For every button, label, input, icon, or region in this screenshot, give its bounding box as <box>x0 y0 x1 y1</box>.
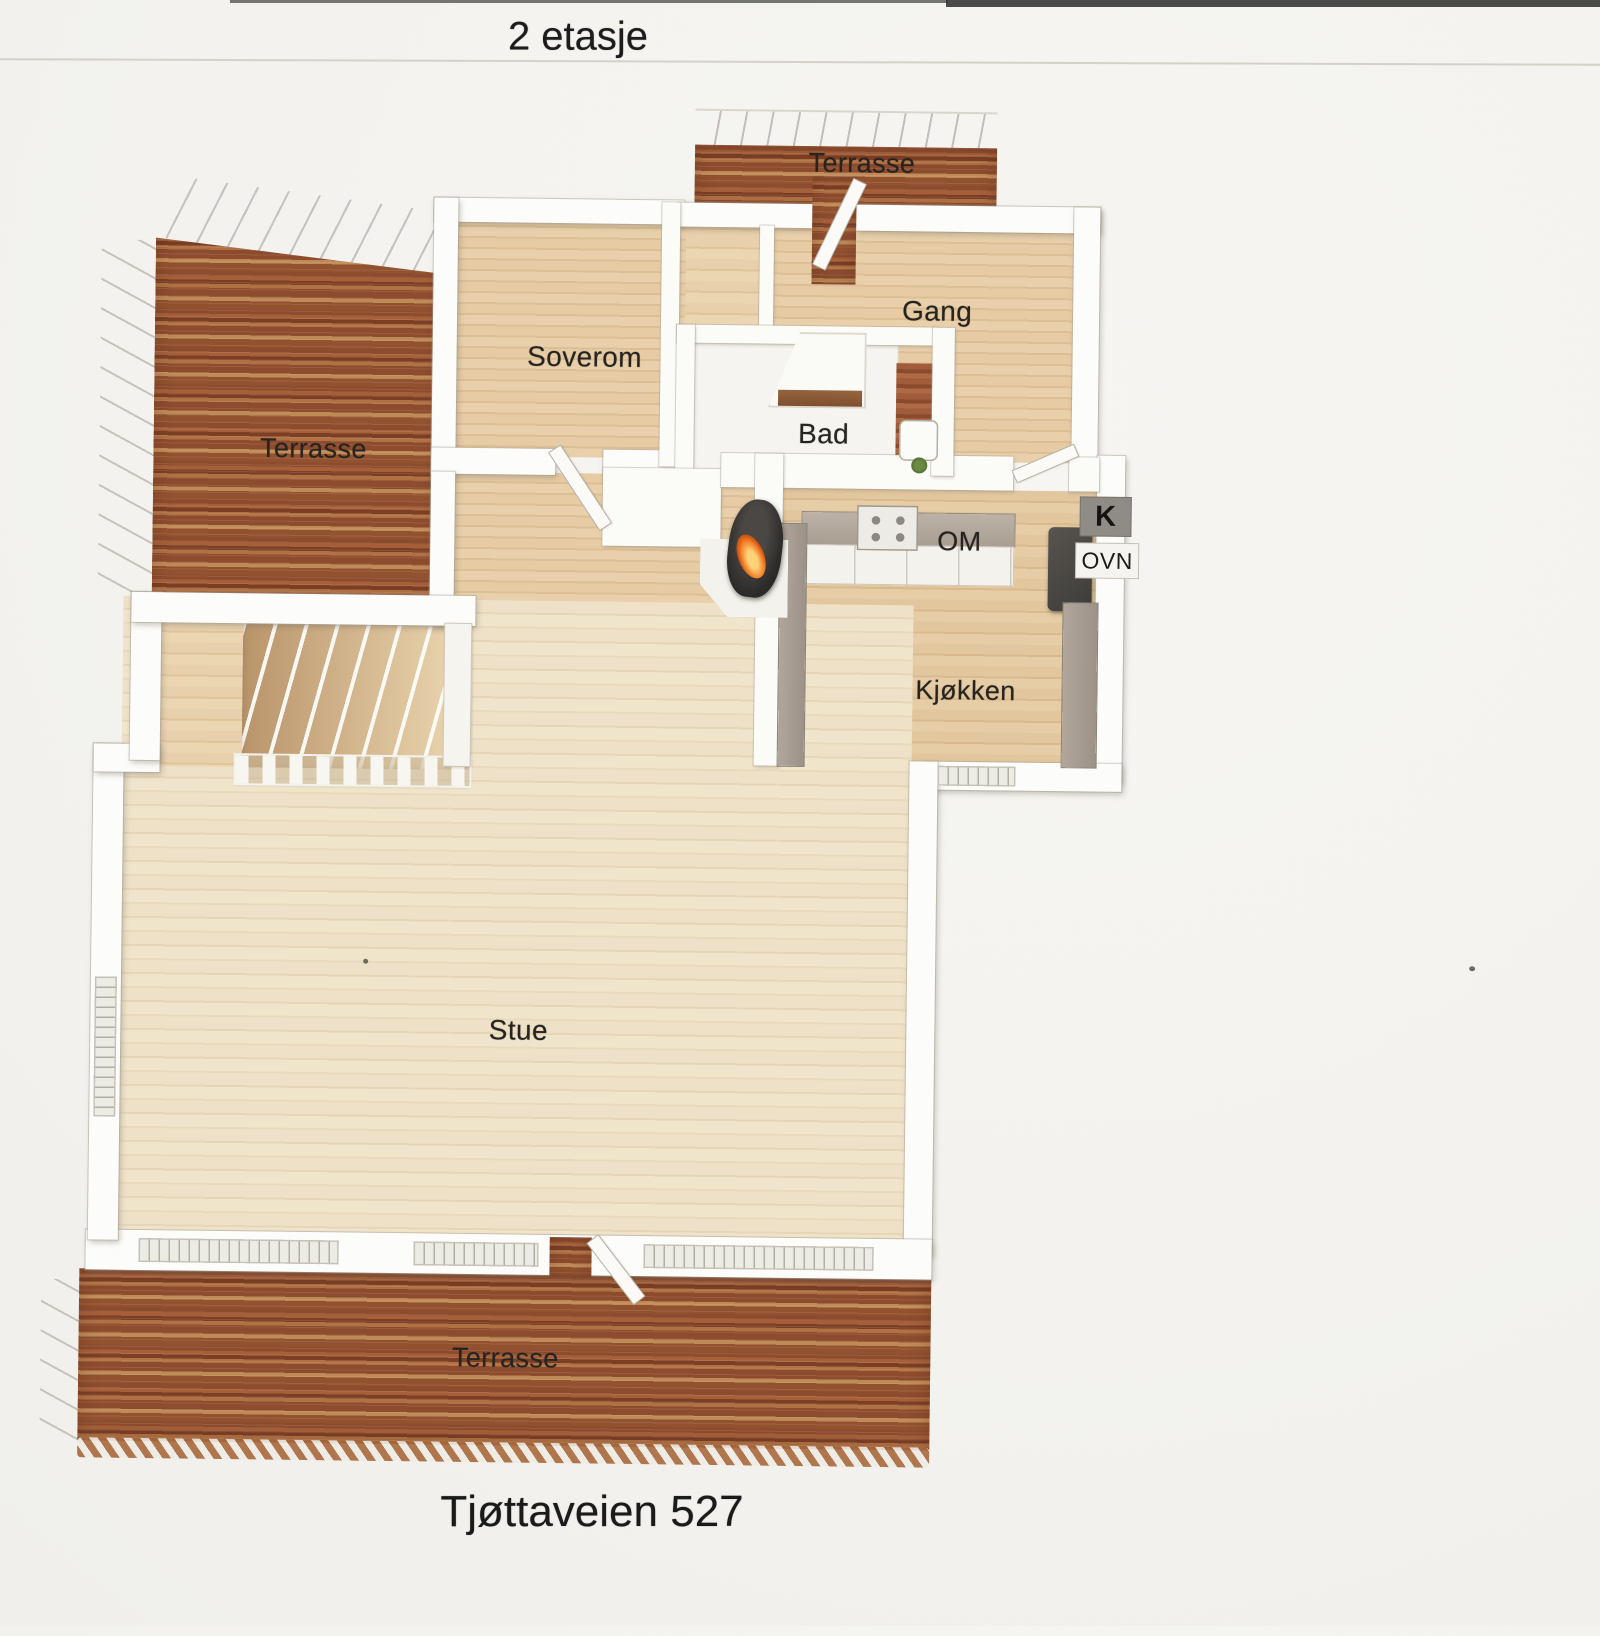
label-kjokken: Kjøkken <box>915 675 1016 707</box>
closet-floor <box>685 237 762 330</box>
stair-railing-horizontal <box>235 755 469 786</box>
scanned-floorplan-page: { "page": { "title": "2 etasje", "addres… <box>0 0 1600 1626</box>
label-k-badge: K <box>1080 497 1130 536</box>
window <box>643 1244 873 1271</box>
label-terrasse-top: Terrasse <box>808 148 915 180</box>
sink-fixture <box>900 421 936 459</box>
door-threshold-bottom <box>549 1237 591 1278</box>
cooktop-fixture <box>858 507 917 550</box>
window <box>138 1238 338 1264</box>
wall-interior <box>602 468 721 547</box>
wall-exterior <box>1071 207 1100 469</box>
stair-railing-vertical <box>444 624 472 766</box>
wall-interior <box>759 225 774 331</box>
scan-speck <box>363 959 368 964</box>
wall-exterior <box>131 592 475 626</box>
label-terrasse-bottom: Terrasse <box>452 1342 559 1374</box>
wall-exterior <box>904 761 938 1255</box>
kitchen-counter-front <box>802 544 1014 587</box>
scan-speck <box>1469 966 1475 971</box>
stair-treads <box>242 621 470 770</box>
window <box>413 1241 538 1267</box>
stair-landing-floor <box>158 620 244 767</box>
wall-interior <box>1069 457 1099 491</box>
label-gang: Gang <box>902 295 972 328</box>
floor-plan: Terrasse Soverom Gang Bad Terrasse OM K … <box>0 0 1600 1636</box>
wall-exterior <box>431 197 458 473</box>
label-om: OM <box>937 526 982 558</box>
terrace-left-deck <box>152 232 448 606</box>
window <box>93 976 117 1116</box>
label-ovn: OVN <box>1076 543 1138 578</box>
window <box>937 766 1015 787</box>
label-bad: Bad <box>798 418 849 451</box>
wall-exterior <box>856 205 1100 234</box>
bathroom-shelf <box>778 390 862 407</box>
kitchen-cabinet-right <box>1062 603 1098 767</box>
wall-interior <box>675 324 695 476</box>
label-soverom: Soverom <box>527 341 642 374</box>
label-stue: Stue <box>489 1014 549 1047</box>
wall-exterior <box>434 197 684 224</box>
address-label: Tjøttaveien 527 <box>440 1487 743 1537</box>
label-terrasse-left: Terrasse <box>260 433 367 465</box>
plant-fixture <box>911 457 927 473</box>
railing-left-terrace-side-icon <box>98 239 158 602</box>
wall-exterior <box>678 202 812 228</box>
